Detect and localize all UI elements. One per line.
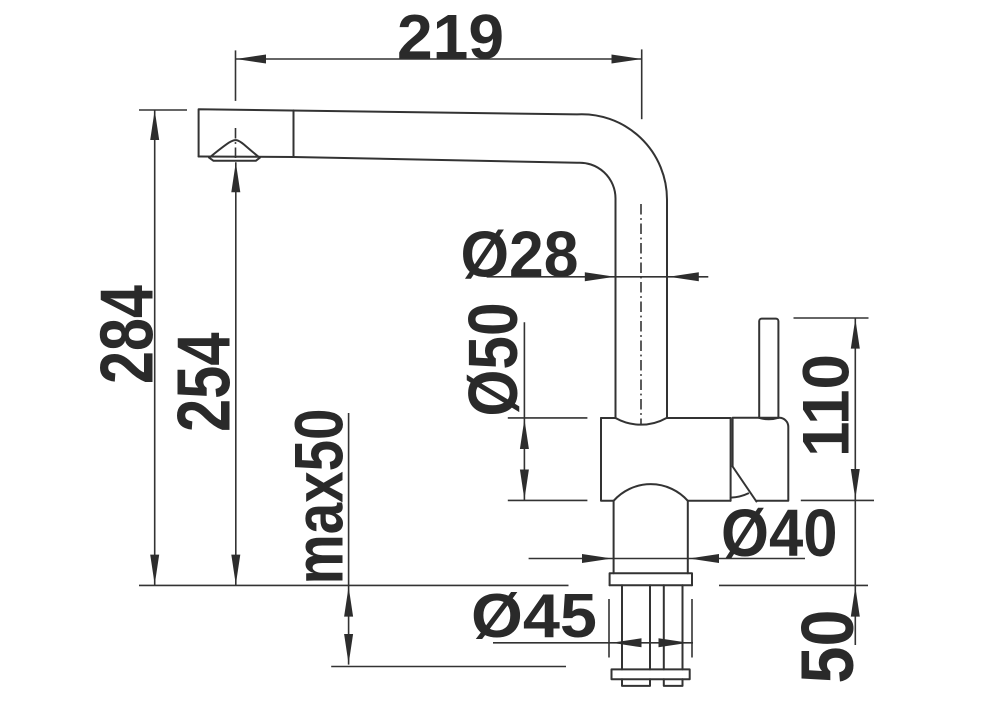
- svg-text:Ø40: Ø40: [721, 496, 838, 571]
- svg-text:284: 284: [85, 285, 169, 384]
- svg-text:110: 110: [789, 354, 863, 457]
- svg-text:Ø45: Ø45: [471, 582, 597, 651]
- svg-text:Ø50: Ø50: [454, 303, 532, 417]
- svg-text:50: 50: [786, 610, 869, 684]
- svg-text:219: 219: [397, 3, 504, 73]
- svg-text:254: 254: [162, 332, 246, 432]
- svg-text:max50: max50: [281, 409, 358, 585]
- svg-text:Ø28: Ø28: [461, 218, 579, 291]
